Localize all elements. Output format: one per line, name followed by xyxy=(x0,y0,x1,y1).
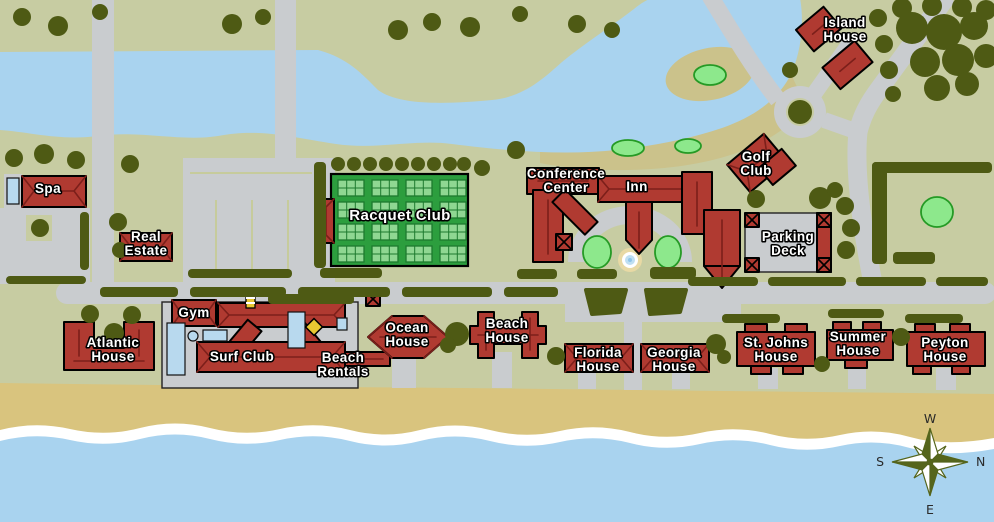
golf-green xyxy=(675,139,701,153)
tree-icon xyxy=(924,75,950,101)
atlantic-house-label[interactable]: Atlantic xyxy=(87,335,140,350)
tree-icon xyxy=(885,86,901,102)
tree-icon xyxy=(13,8,31,26)
hedge xyxy=(504,287,558,297)
hedge xyxy=(893,252,935,264)
hedge xyxy=(872,162,992,173)
tree-icon xyxy=(5,149,23,167)
tree-icon xyxy=(842,219,860,237)
spa-label[interactable]: Spa xyxy=(35,181,61,196)
golf-green xyxy=(921,197,953,227)
tree-icon xyxy=(474,160,490,176)
tree-icon xyxy=(67,151,85,169)
tree-icon xyxy=(123,306,141,324)
tree-icon xyxy=(255,9,271,25)
tree-icon xyxy=(121,155,139,173)
tree-icon xyxy=(717,350,731,364)
ocean-house-label[interactable]: Ocean xyxy=(385,320,428,335)
tree-icon xyxy=(379,157,393,171)
hedge xyxy=(314,162,326,268)
tree-icon xyxy=(547,347,565,365)
beach-rentals-label[interactable]: Rentals xyxy=(317,364,369,379)
golf-green xyxy=(694,65,726,85)
tree-icon xyxy=(942,44,974,76)
surf-club-label[interactable]: Surf Club xyxy=(210,349,274,364)
tree-icon xyxy=(222,14,242,34)
ocean xyxy=(0,435,994,522)
tree-icon xyxy=(910,47,940,77)
tree-icon xyxy=(457,157,471,171)
tree-icon xyxy=(827,182,843,198)
compass-north-label: N xyxy=(976,454,985,469)
ocean-house-label[interactable]: House xyxy=(385,334,428,349)
hedge xyxy=(872,162,887,264)
tree-icon xyxy=(837,241,855,259)
st-johns-house-label[interactable]: St. Johns xyxy=(744,335,808,350)
hedge xyxy=(828,309,884,318)
island-house-label[interactable]: House xyxy=(823,29,866,44)
beach-house-label[interactable]: House xyxy=(485,330,528,345)
florida-house-label[interactable]: House xyxy=(576,359,619,374)
tree-icon xyxy=(411,157,425,171)
florida-house-label[interactable]: Florida xyxy=(574,345,622,360)
golf-green xyxy=(655,236,681,268)
tree-icon xyxy=(423,13,441,31)
golf-club-label[interactable]: Club xyxy=(740,163,772,178)
real-estate-label[interactable]: Estate xyxy=(125,243,168,258)
parking-deck-label[interactable]: Deck xyxy=(771,243,805,258)
tree-icon xyxy=(604,22,620,38)
racquet-club-label[interactable]: Racquet Club xyxy=(349,207,450,224)
compass-west-label: W xyxy=(924,411,936,426)
tree-icon xyxy=(960,12,988,40)
tree-icon xyxy=(347,157,361,171)
beach-house-label[interactable]: Beach xyxy=(486,316,529,331)
tree-icon xyxy=(880,61,898,79)
gym-label[interactable]: Gym xyxy=(178,305,209,320)
real-estate-label[interactable]: Real xyxy=(131,229,161,244)
hedge xyxy=(100,287,178,297)
tree-icon xyxy=(836,197,854,215)
tree-icon xyxy=(875,35,893,53)
tree-icon xyxy=(395,157,409,171)
tree-icon xyxy=(814,356,830,372)
georgia-house-label[interactable]: Georgia xyxy=(647,345,701,360)
conference-center-label[interactable]: Conference xyxy=(527,166,605,181)
tree-icon xyxy=(782,62,798,78)
st-johns-house-label[interactable]: House xyxy=(754,349,797,364)
peyton-house-label[interactable]: House xyxy=(923,349,966,364)
corner-hedge xyxy=(586,290,626,314)
compass-south-label: S xyxy=(876,454,884,469)
parking-lot xyxy=(183,158,335,284)
compass-east-label: E xyxy=(926,502,934,517)
tree-icon xyxy=(512,6,528,22)
golf-club-label[interactable]: Golf xyxy=(742,149,771,164)
hedge xyxy=(856,277,926,286)
hedge xyxy=(268,294,354,304)
parking-access-road xyxy=(275,0,296,170)
tree-icon xyxy=(896,12,928,44)
hedge xyxy=(320,268,382,278)
west-road xyxy=(92,0,114,292)
tree-icon xyxy=(440,337,456,353)
tree-icon xyxy=(34,144,54,164)
spa-pool xyxy=(7,178,19,204)
tree-icon xyxy=(331,157,345,171)
tree-icon xyxy=(460,17,480,37)
tree-icon xyxy=(443,157,457,171)
georgia-house-label[interactable]: House xyxy=(652,359,695,374)
island-house-label[interactable]: Island xyxy=(824,15,865,30)
tree-icon xyxy=(48,16,68,36)
hedge xyxy=(650,267,696,279)
tree-icon xyxy=(788,100,812,124)
tree-icon xyxy=(892,328,910,346)
hedge xyxy=(80,212,89,270)
hedge xyxy=(517,269,557,279)
golf-green xyxy=(612,140,644,156)
resort-map: W E S N Spa Real Estate Racquet Club Con… xyxy=(0,0,994,522)
hedge xyxy=(688,277,758,286)
hedge xyxy=(577,269,617,279)
tree-icon xyxy=(81,305,99,323)
atlantic-house-label[interactable]: House xyxy=(91,349,134,364)
tree-icon xyxy=(92,4,108,20)
summer-house-label[interactable]: Summer xyxy=(830,329,887,344)
tree-icon xyxy=(747,190,765,208)
tree-icon xyxy=(363,157,377,171)
tree-icon xyxy=(869,9,887,27)
tree-icon xyxy=(31,219,49,237)
corner-hedge xyxy=(646,290,686,314)
hedge xyxy=(402,287,492,297)
tree-icon xyxy=(427,157,441,171)
beach-rentals-label[interactable]: Beach xyxy=(322,350,365,365)
inn-label[interactable]: Inn xyxy=(626,179,647,194)
tree-icon xyxy=(955,72,979,96)
hedge xyxy=(6,276,86,284)
hedge xyxy=(768,277,846,286)
hedge xyxy=(722,314,780,323)
tree-icon xyxy=(109,213,127,231)
peyton-house-label[interactable]: Peyton xyxy=(921,335,968,350)
tree-icon xyxy=(507,141,525,159)
hedge xyxy=(905,314,963,323)
hedge xyxy=(936,277,988,286)
roundabout-stub xyxy=(824,120,858,132)
hedge xyxy=(188,269,292,278)
tree-icon xyxy=(568,15,586,33)
summer-house-label[interactable]: House xyxy=(836,343,879,358)
parking-deck-label[interactable]: Parking xyxy=(762,229,814,244)
conference-center-label[interactable]: Center xyxy=(543,180,589,195)
golf-green xyxy=(583,236,611,268)
tree-icon xyxy=(388,20,408,40)
